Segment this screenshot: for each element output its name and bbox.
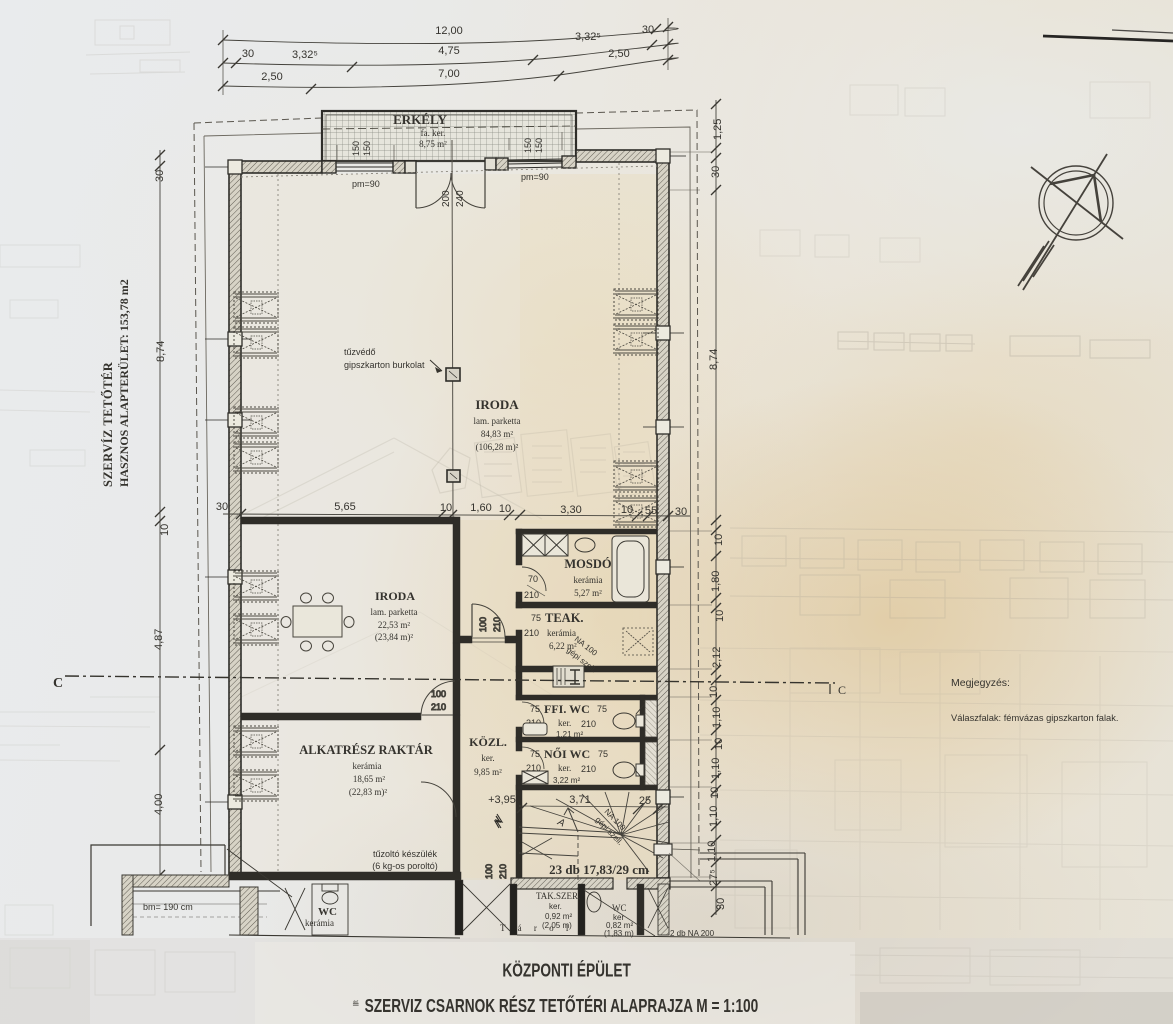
svg-text:0,92 m²: 0,92 m²	[545, 912, 572, 921]
svg-text:3,22 m²: 3,22 m²	[553, 776, 580, 785]
svg-text:3,30: 3,30	[560, 504, 581, 516]
svg-text:KÖZL.: KÖZL.	[469, 735, 507, 749]
svg-text:30: 30	[216, 501, 228, 513]
svg-text:150: 150	[534, 138, 544, 153]
svg-text:WC: WC	[318, 906, 337, 918]
svg-text:22,53 m²: 22,53 m²	[378, 620, 411, 630]
svg-text:70: 70	[528, 574, 538, 584]
svg-text:75: 75	[530, 749, 540, 759]
svg-text:ker.: ker.	[549, 902, 562, 911]
svg-text:KÖZPONTI ÉPÜLET: KÖZPONTI ÉPÜLET	[502, 960, 631, 981]
svg-text:C: C	[53, 676, 63, 691]
svg-text:210: 210	[524, 590, 539, 600]
svg-text:ker.: ker.	[481, 753, 494, 763]
svg-text:kerámia: kerámia	[305, 918, 334, 928]
svg-text:10: 10	[708, 686, 720, 698]
svg-text:75: 75	[597, 704, 607, 714]
svg-text:4,87: 4,87	[153, 629, 165, 650]
svg-text:5,65: 5,65	[334, 501, 355, 513]
svg-text:75: 75	[530, 704, 540, 714]
svg-text:bm= 190 cm: bm= 190 cm	[143, 902, 193, 912]
svg-text:HASZNOS ALAPTERÜLET: 153,78 m2: HASZNOS ALAPTERÜLET: 153,78 m2	[117, 279, 131, 487]
svg-text:10: 10	[709, 787, 721, 799]
svg-text:C: C	[838, 683, 846, 697]
svg-text:(1,83 m): (1,83 m)	[604, 929, 634, 938]
svg-text:lam. parketta: lam. parketta	[474, 416, 521, 426]
svg-text:18,65 m²: 18,65 m²	[353, 774, 386, 784]
svg-text:SZERVÍZ TETŐTÉR: SZERVÍZ TETŐTÉR	[100, 361, 115, 487]
svg-text:27⁵: 27⁵	[708, 869, 720, 886]
svg-text:55: 55	[645, 505, 657, 517]
svg-text:ERKÉLY: ERKÉLY	[393, 112, 447, 127]
svg-text:210: 210	[498, 864, 508, 879]
svg-text:84,83 m²: 84,83 m²	[481, 429, 514, 439]
svg-text:kerámia: kerámia	[547, 628, 576, 638]
svg-text:100: 100	[478, 617, 488, 632]
svg-text:pm=90: pm=90	[521, 172, 549, 182]
svg-text:Megjegyzés:: Megjegyzés:	[951, 677, 1010, 689]
svg-text:10: 10	[713, 738, 725, 750]
svg-text:Válaszfalak: fémvázas gipszkar: Válaszfalak: fémvázas gipszkarton falak.	[951, 713, 1118, 723]
svg-text:100: 100	[484, 864, 494, 879]
svg-text:12,00: 12,00	[435, 25, 463, 37]
svg-text:210: 210	[581, 719, 596, 729]
svg-text:2,50: 2,50	[608, 48, 629, 60]
svg-text:pm=90: pm=90	[352, 179, 380, 189]
svg-text:TAK.SZER.: TAK.SZER.	[536, 891, 580, 901]
svg-text:1,80: 1,80	[710, 571, 722, 592]
svg-text:10: 10	[159, 524, 171, 536]
svg-text:10: 10	[714, 610, 726, 622]
svg-text:75: 75	[531, 613, 541, 623]
svg-text:150: 150	[351, 141, 361, 156]
svg-text:FFI. WC: FFI. WC	[544, 702, 590, 716]
svg-text:75: 75	[598, 749, 608, 759]
svg-text:100: 100	[431, 689, 446, 699]
svg-text:(23,84 m)²: (23,84 m)²	[375, 632, 413, 642]
svg-text:≝: ≝	[352, 999, 360, 1009]
svg-text:150: 150	[362, 141, 372, 156]
svg-text:210: 210	[492, 617, 502, 632]
svg-text:200: 200	[441, 190, 452, 207]
svg-text:150: 150	[523, 138, 533, 153]
svg-text:(6 kg-os poroltó): (6 kg-os poroltó)	[372, 861, 438, 871]
svg-text:7,00: 7,00	[438, 68, 459, 80]
svg-text:30: 30	[710, 166, 722, 178]
svg-text:8,74: 8,74	[155, 341, 167, 362]
svg-text:10: 10	[621, 504, 633, 516]
svg-text:3,32⁵: 3,32⁵	[575, 31, 601, 43]
svg-text:3,32⁵: 3,32⁵	[292, 49, 318, 61]
svg-text:210: 210	[524, 628, 539, 638]
svg-text:ALKATRÉSZ RAKTÁR: ALKATRÉSZ RAKTÁR	[299, 743, 433, 757]
svg-text:IRODA: IRODA	[475, 397, 519, 412]
svg-text:9,85 m²: 9,85 m²	[474, 767, 502, 777]
svg-text:kerámia: kerámia	[353, 761, 382, 771]
svg-text:25: 25	[639, 795, 651, 807]
svg-text:30: 30	[154, 170, 166, 182]
svg-text:2,50: 2,50	[261, 71, 282, 83]
svg-text:(2,05 m): (2,05 m)	[542, 921, 572, 930]
svg-text:1,60: 1,60	[470, 502, 491, 514]
svg-text:210: 210	[431, 702, 446, 712]
svg-text:2 db NA 200: 2 db NA 200	[670, 929, 715, 938]
svg-text:8,74: 8,74	[708, 349, 720, 370]
svg-text:3,71: 3,71	[569, 794, 590, 806]
svg-text:23 db 17,83/29 cm: 23 db 17,83/29 cm	[549, 862, 649, 877]
svg-text:TEAK.: TEAK.	[545, 611, 584, 625]
svg-text:tűzvédő: tűzvédő	[344, 347, 376, 357]
svg-text:(22,83 m)²: (22,83 m)²	[349, 787, 387, 797]
svg-text:1,10: 1,10	[711, 707, 723, 728]
svg-text:8,75 m²: 8,75 m²	[419, 139, 447, 149]
svg-text:IRODA: IRODA	[375, 589, 415, 603]
svg-text:ker.: ker.	[558, 718, 571, 728]
svg-text:1,25: 1,25	[712, 119, 724, 140]
svg-text:lam. parketta: lam. parketta	[371, 607, 418, 617]
svg-text:5,27 m²: 5,27 m²	[574, 588, 602, 598]
svg-text:gipszkarton burkolat: gipszkarton burkolat	[344, 360, 425, 370]
svg-text:1,10: 1,10	[708, 806, 720, 827]
svg-text:2,12: 2,12	[711, 647, 723, 668]
svg-text:4,00: 4,00	[153, 794, 165, 815]
svg-text:10: 10	[440, 502, 452, 514]
svg-text:(106,28 m)²: (106,28 m)²	[476, 442, 519, 452]
svg-text:210: 210	[581, 764, 596, 774]
svg-text:+3,95: +3,95	[488, 794, 516, 806]
svg-text:30: 30	[242, 48, 254, 60]
svg-text:30: 30	[675, 506, 687, 518]
svg-text:fa. ker.: fa. ker.	[421, 128, 446, 138]
svg-text:NŐI WC: NŐI WC	[544, 746, 590, 761]
svg-text:4,75: 4,75	[438, 45, 459, 57]
svg-text:ker.: ker.	[558, 763, 571, 773]
svg-text:1,21 m²: 1,21 m²	[556, 730, 583, 739]
svg-text:10: 10	[499, 503, 511, 515]
svg-text:WC: WC	[612, 903, 627, 913]
svg-text:240: 240	[455, 190, 466, 207]
svg-text:MOSDÓ: MOSDÓ	[564, 557, 612, 571]
svg-text:SZERVIZ CSARNOK RÉSZ TETŐTÉRI: SZERVIZ CSARNOK RÉSZ TETŐTÉRI ALAPRAJZA …	[365, 995, 759, 1016]
svg-text:10: 10	[713, 534, 725, 546]
svg-text:kerámia: kerámia	[574, 575, 603, 585]
svg-text:30: 30	[642, 24, 654, 36]
svg-text:tűzoltó készülék: tűzoltó készülék	[373, 849, 438, 859]
svg-text:30: 30	[715, 898, 727, 910]
svg-text:1,10: 1,10	[710, 758, 722, 779]
